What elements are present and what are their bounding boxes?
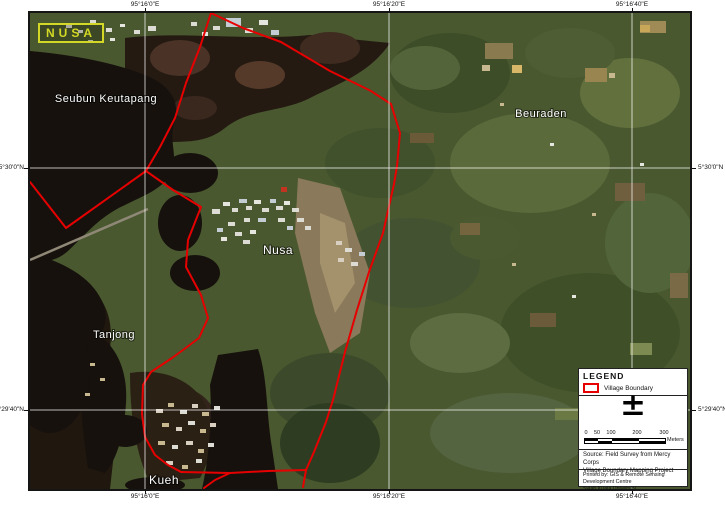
scale-tick-label: 300	[659, 430, 668, 436]
north-arrow-icon: ±	[579, 390, 687, 421]
coord-label-bottom-1: 95°16'20"E	[373, 493, 405, 500]
coord-label-left-0: 5°30'0"N	[0, 164, 24, 171]
scale-bar: 0 50 100 200 300 Meters	[584, 430, 684, 446]
legend-panel: LEGEND Village Boundary ± 0 50 100 200 3…	[578, 368, 688, 487]
map-title-badge: NUSA	[38, 23, 104, 43]
place-label-seubun: Seubun Keutapang	[55, 93, 157, 105]
place-label-beuraden: Beuraden	[515, 108, 567, 120]
scale-bar-segments	[584, 438, 666, 444]
coord-label-right-1: 5°29'40"N	[698, 406, 725, 413]
map-sheet: 95°16'0"E 95°16'20"E 95°16'40"E 95°16'0"…	[0, 0, 725, 512]
coord-label-top-0: 95°16'0"E	[131, 1, 160, 8]
source-line-1: Source: Field Survey from Mercy Corps	[583, 452, 683, 468]
place-label-tanjong: Tanjong	[93, 329, 135, 341]
place-label-nusa: Nusa	[263, 243, 293, 257]
coord-label-bottom-2: 95°16'40"E	[616, 493, 648, 500]
coord-label-top-2: 95°16'40"E	[616, 1, 648, 8]
coord-label-right-0: 5°30'0"N	[698, 164, 723, 171]
scale-unit-label: Meters	[667, 437, 684, 443]
scale-tick-label: 0	[584, 430, 587, 436]
coord-label-left-1: 5°29'40"N	[0, 406, 24, 413]
coord-label-bottom-0: 95°16'0"E	[131, 493, 160, 500]
legend-title: LEGEND	[583, 371, 683, 381]
scale-tick-label: 200	[632, 430, 641, 436]
credit-line-2: Syiah Kuala University	[583, 486, 683, 493]
scale-tick-label: 50	[594, 430, 600, 436]
place-label-kueh: Kueh	[149, 473, 179, 487]
coord-label-top-1: 95°16'20"E	[373, 1, 405, 8]
legend-source: Source: Field Survey from Mercy Corps Vi…	[579, 449, 687, 469]
scale-tick-label: 100	[606, 430, 615, 436]
